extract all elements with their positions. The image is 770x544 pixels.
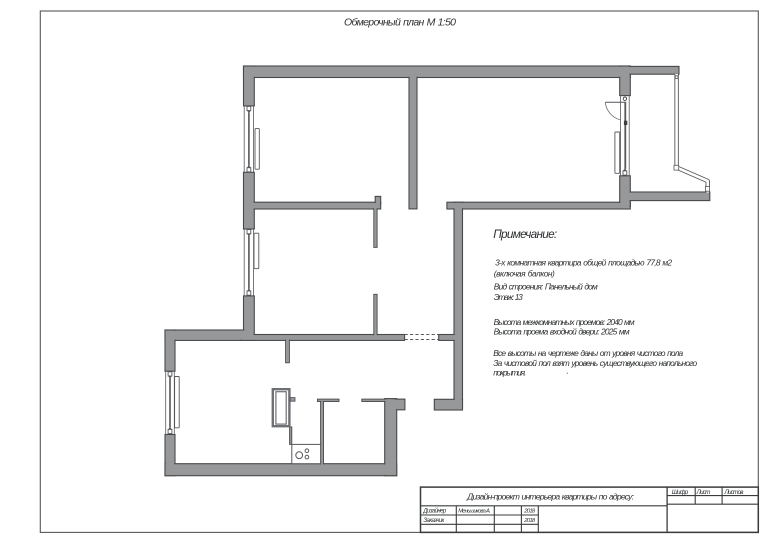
svg-text:покрытия.: покрытия. <box>493 368 526 378</box>
svg-text:2018: 2018 <box>523 518 536 524</box>
svg-text:Высота проема входной двери: 2: Высота проема входной двери: 2025 мм <box>494 327 630 337</box>
svg-text:Шифр: Шифр <box>672 489 689 496</box>
svg-text:Обмерочный план М 1:50: Обмерочный план М 1:50 <box>344 17 456 29</box>
svg-text:(включая балкон): (включая балкон) <box>494 268 555 278</box>
svg-text:Высота межкомнатных проемов: 2: Высота межкомнатных проемов: 2040 мм <box>494 317 635 327</box>
svg-text:Лист: Лист <box>696 489 712 496</box>
svg-text:За чистовой пол взят уровень с: За чистовой пол взят уровень существующе… <box>493 358 697 368</box>
svg-text:Вид строения: Панельный дом: Вид строения: Панельный дом <box>494 282 598 292</box>
svg-text:Листов: Листов <box>724 489 745 496</box>
svg-text:Дизайн-проект интерьера кварти: Дизайн-проект интерьера квартиры по адре… <box>466 492 634 502</box>
svg-text:Примечание:: Примечание: <box>493 227 557 241</box>
svg-text:Заказчик: Заказчик <box>423 518 445 524</box>
svg-text:Этаж: 13: Этаж: 13 <box>494 292 523 302</box>
svg-text:Дизайнер: Дизайнер <box>422 507 446 514</box>
svg-text:Меньшикова А.: Меньшикова А. <box>458 508 491 514</box>
svg-text:3-х комнатная квартира общей п: 3-х комнатная квартира общей площадью 77… <box>495 258 672 268</box>
svg-text:Все высоты на чертеже даны от: Все высоты на чертеже даны от уровня чис… <box>493 348 683 358</box>
svg-text:2018: 2018 <box>523 509 536 515</box>
